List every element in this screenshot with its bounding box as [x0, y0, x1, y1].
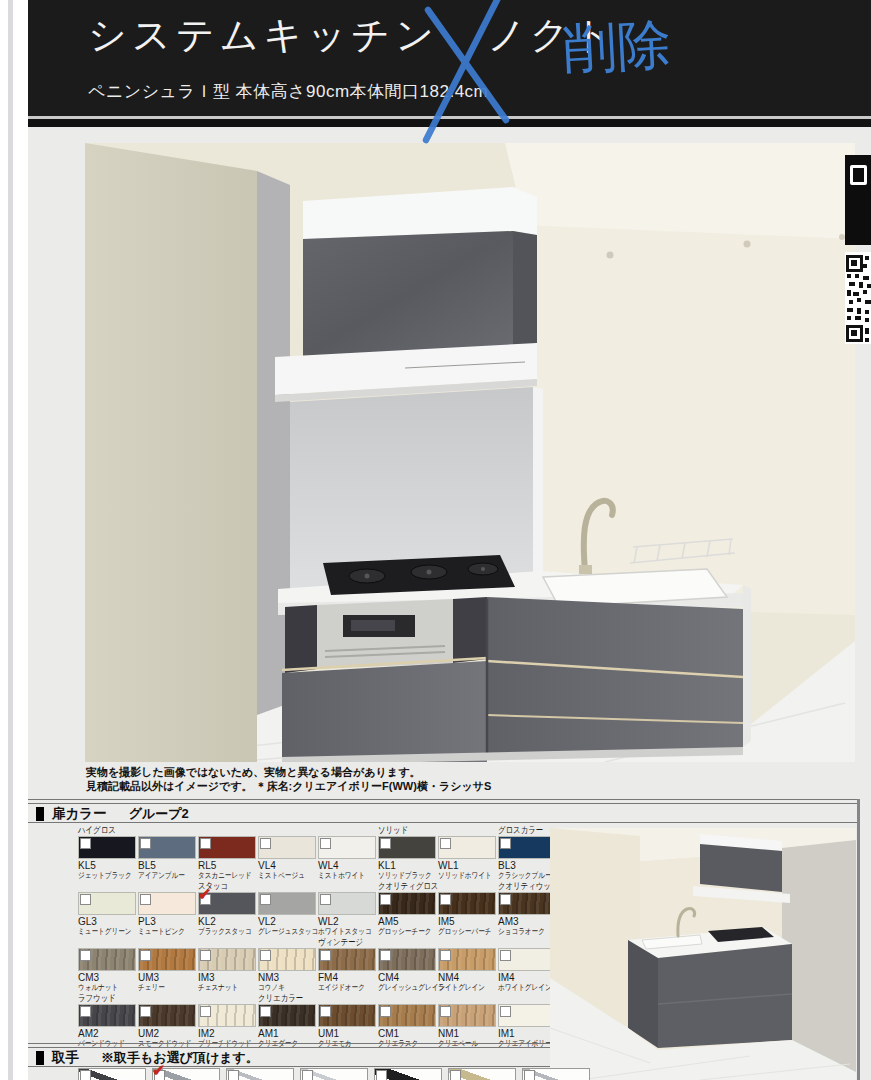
door-color-cell-NM1: NM1クリエペール	[438, 992, 496, 1048]
door-color-cell-NM3: NM3コウノキ	[258, 936, 316, 992]
door-color-cell-IM1: IM1クリエアイボリー	[498, 992, 556, 1048]
door-color-section-header: 扉カラー グループ2	[36, 805, 189, 823]
door-color-cell-IM2: IM2ブリーチドウッド	[198, 992, 256, 1048]
swatch-code: CM3	[78, 972, 136, 983]
section-rule	[28, 822, 860, 823]
swatch-checkbox-UM2[interactable]	[140, 1006, 151, 1017]
page-right-border	[857, 799, 860, 1080]
door-color-swatch-RL5[interactable]	[198, 836, 256, 859]
swatch-checkbox-VL4[interactable]	[260, 838, 271, 849]
door-color-swatch-BL3[interactable]	[498, 836, 556, 859]
door-color-swatch-IM4[interactable]	[498, 948, 556, 971]
section-bullet	[36, 1051, 44, 1065]
door-color-swatch-WL1[interactable]	[438, 836, 496, 859]
door-color-swatch-VL4[interactable]	[258, 836, 316, 859]
door-color-group-label	[258, 880, 306, 892]
header-divider-dark	[28, 119, 871, 127]
door-color-cell-UM1: UM1クリエモカ	[318, 992, 376, 1048]
handle-swatch-6[interactable]	[448, 1068, 516, 1080]
swatch-name: チェスナット	[198, 983, 246, 992]
red-checkmark-icon: ✔	[198, 887, 211, 903]
door-color-swatch-NM1[interactable]	[438, 1004, 496, 1027]
swatch-checkbox-AM5[interactable]	[380, 894, 391, 905]
door-color-group-label	[498, 992, 546, 1004]
door-color-group-label	[498, 936, 546, 948]
door-color-swatch-KL5[interactable]	[78, 836, 136, 859]
swatch-name: エイジドオーク	[318, 983, 366, 992]
swatch-code: NM3	[258, 972, 316, 983]
door-color-cell-KL5: ハイグロスKL5ジェットブラック	[78, 824, 136, 880]
kitchen-render-main	[85, 143, 855, 762]
door-color-cell-VL2: VL2グレージュスタッコ	[258, 880, 316, 936]
swatch-name: グレージュスタッコ	[258, 927, 306, 936]
door-color-cell-AM2: ラフウッドAM2バーンドウッド	[78, 992, 136, 1048]
swatch-name: チェリー	[138, 983, 186, 992]
door-color-swatch-PL3[interactable]	[138, 892, 196, 915]
section-rule	[28, 1047, 550, 1048]
door-color-swatch-GL3[interactable]	[78, 892, 136, 915]
handle-checkbox-7[interactable]	[524, 1070, 535, 1080]
door-color-group-label	[438, 880, 486, 892]
swatch-name: グロッシーバーチ	[438, 927, 486, 936]
swatch-name: ミュートグリーン	[78, 927, 126, 936]
swatch-name: ソリッドホワイト	[438, 871, 486, 880]
door-color-group-label: ソリッド	[378, 824, 426, 836]
page-edge-strip	[8, 0, 13, 1080]
swatch-checkbox-IM2[interactable]	[200, 1006, 211, 1017]
camera-icon	[850, 165, 867, 185]
swatch-name: ミストホワイト	[318, 871, 366, 880]
swatch-checkbox-CM3[interactable]	[80, 950, 91, 961]
swatch-code: AM1	[258, 1028, 316, 1039]
door-color-cell-PL3: PL3ミュートピンク	[138, 880, 196, 936]
door-color-cell-NM4: NM4ライトグレイン	[438, 936, 496, 992]
swatch-code: UM2	[138, 1028, 196, 1039]
swatch-checkbox-AM2[interactable]	[80, 1006, 91, 1017]
swatch-checkbox-WL2[interactable]	[320, 894, 331, 905]
door-color-group-label	[318, 824, 366, 836]
door-color-cell-CM1: CM1クリエラスク	[378, 992, 436, 1048]
swatch-checkbox-KL5[interactable]	[80, 838, 91, 849]
swatch-name: グレイッシュグレイン	[378, 983, 426, 992]
swatch-name: ジェットブラック	[78, 871, 126, 880]
swatch-code: FM4	[318, 972, 376, 983]
handle-swatch-2[interactable]: ✔	[152, 1068, 220, 1080]
door-color-cell-RL5: RL5タスカニーレッド	[198, 824, 256, 880]
swatch-code: NM1	[438, 1028, 496, 1039]
swatch-checkbox-IM4[interactable]	[500, 950, 511, 961]
swatch-checkbox-BL5[interactable]	[140, 838, 151, 849]
door-color-group-label	[198, 992, 246, 1004]
swatch-checkbox-CM1[interactable]	[380, 1006, 391, 1017]
swatch-name: ホワイトグレイン	[498, 983, 546, 992]
door-color-cell-AM3: クオリティウッドAM3ショコラオーク	[498, 880, 556, 936]
swatch-checkbox-UM3[interactable]	[140, 950, 151, 961]
swatch-name: ソリッドブラック	[378, 871, 426, 880]
swatch-code: WL4	[318, 860, 376, 871]
door-color-group-label	[438, 992, 486, 1004]
door-color-swatch-UM1[interactable]	[318, 1004, 376, 1027]
door-color-group-label	[138, 992, 186, 1004]
swatch-code: IM1	[498, 1028, 556, 1039]
swatch-checkbox-IM1[interactable]	[500, 1006, 511, 1017]
door-color-swatch-AM1[interactable]	[258, 1004, 316, 1027]
door-color-swatch-AM2[interactable]	[78, 1004, 136, 1027]
swatch-code: KL5	[78, 860, 136, 871]
door-color-cell-UM3: UM3チェリー	[138, 936, 196, 992]
red-checkmark-icon: ✔	[152, 1063, 165, 1079]
door-color-cell-IM5: IM5グロッシーバーチ	[438, 880, 496, 936]
door-color-cell-IM4: IM4ホワイトグレイン	[498, 936, 556, 992]
handle-checkbox-3[interactable]	[228, 1070, 239, 1080]
door-color-group-label: グロスカラー	[498, 824, 546, 836]
door-color-grid: ハイグロスKL5ジェットブラックBL5アイアンブルーRL5タスカニーレッドVL4…	[78, 824, 560, 1048]
swatch-name: クラシックブルー	[498, 871, 546, 880]
image-disclaimer: 実物を撮影した画像ではないため、実物と異なる場合があります。 見積記載品以外はイ…	[86, 765, 846, 793]
swatch-code: CM4	[378, 972, 436, 983]
door-color-group-label	[78, 880, 126, 892]
handle-swatch-4[interactable]	[300, 1068, 368, 1080]
swatch-checkbox-VL2[interactable]	[260, 894, 271, 905]
door-color-swatch-CM4[interactable]	[378, 948, 436, 971]
door-color-cell-BL5: BL5アイアンブルー	[138, 824, 196, 880]
swatch-code: VL4	[258, 860, 316, 871]
door-color-cell-WL4: WL4ミストホワイト	[318, 824, 376, 880]
door-color-group-label	[198, 936, 246, 948]
door-color-cell-AM1: クリエカラーAM1クリエダーク	[258, 992, 316, 1048]
door-color-group-label: クオリティグロス	[378, 880, 426, 892]
disclaimer-line-1: 実物を撮影した画像ではないため、実物と異なる場合があります。	[86, 765, 846, 779]
door-color-group-label: クオリティウッド	[498, 880, 546, 892]
swatch-checkbox-AM3[interactable]	[500, 894, 511, 905]
door-color-swatch-UM2[interactable]	[138, 1004, 196, 1027]
swatch-code: AM3	[498, 916, 556, 927]
swatch-code: UM1	[318, 1028, 376, 1039]
handle-checkbox-1[interactable]	[80, 1070, 91, 1080]
swatch-code: VL2	[258, 916, 316, 927]
door-color-group-label	[258, 936, 306, 948]
swatch-checkbox-PL3[interactable]	[140, 894, 151, 905]
qr-code[interactable]	[845, 252, 871, 344]
door-color-swatch-BL5[interactable]	[138, 836, 196, 859]
swatch-name: ホワイトスタッコ	[318, 927, 366, 936]
section-rule	[28, 799, 860, 800]
door-color-swatch-WL4[interactable]	[318, 836, 376, 859]
header: システムキッチン ノクト ペニンシュラＩ型 本体高さ90cm本体間口182.4c…	[28, 0, 871, 116]
swatch-checkbox-WL4[interactable]	[320, 838, 331, 849]
page-title: システムキッチン	[88, 10, 439, 61]
handle-note: ※取手もお選び頂けます。	[101, 1049, 259, 1067]
door-color-cell-AM5: クオリティグロスAM5グロッシーチーク	[378, 880, 436, 936]
swatch-checkbox-NM4[interactable]	[440, 950, 451, 961]
swatch-code: WL2	[318, 916, 376, 927]
door-color-swatch-IM1[interactable]	[498, 1004, 556, 1027]
swatch-checkbox-IM3[interactable]	[200, 950, 211, 961]
swatch-code: PL3	[138, 916, 196, 927]
swatch-code: IM3	[198, 972, 256, 983]
handle-checkbox-6[interactable]	[450, 1070, 461, 1080]
section-rule	[28, 803, 860, 804]
door-color-group-label	[318, 880, 366, 892]
door-color-swatch-NM3[interactable]	[258, 948, 316, 971]
door-color-group-label	[438, 936, 486, 948]
door-color-swatch-KL1[interactable]	[378, 836, 436, 859]
handle-swatch-7[interactable]	[522, 1068, 590, 1080]
swatch-name: ライトグレイン	[438, 983, 486, 992]
handle-title: 取手	[52, 1049, 79, 1067]
product-name: ノクト	[487, 10, 616, 61]
door-color-group-label	[318, 992, 366, 1004]
kitchen-render-small	[550, 828, 856, 1080]
door-color-group-label: ハイグロス	[78, 824, 126, 836]
handle-checkbox-5[interactable]	[376, 1070, 387, 1080]
door-color-swatch-FM4[interactable]	[318, 948, 376, 971]
door-color-swatch-UM3[interactable]	[138, 948, 196, 971]
door-color-cell-BL3: グロスカラーBL3クラシックブルー	[498, 824, 556, 880]
door-color-swatch-AM3[interactable]	[498, 892, 556, 915]
swatch-name: ミストベージュ	[258, 871, 306, 880]
door-color-cell-IM3: IM3チェスナット	[198, 936, 256, 992]
handle-swatch-3[interactable]	[226, 1068, 294, 1080]
door-color-cell-FM4: ヴィンテージFM4エイジドオーク	[318, 936, 376, 992]
door-color-swatch-WL2[interactable]	[318, 892, 376, 915]
swatch-checkbox-RL5[interactable]	[200, 838, 211, 849]
door-color-group-label	[438, 824, 486, 836]
door-color-cell-KL1: ソリッドKL1ソリッドブラック	[378, 824, 436, 880]
swatch-checkbox-FM4[interactable]	[320, 950, 331, 961]
handle-grid: ✔	[78, 1068, 590, 1080]
swatch-code: NM4	[438, 972, 496, 983]
door-color-cell-WL2: WL2ホワイトスタッコ	[318, 880, 376, 936]
door-color-group-label	[138, 824, 186, 836]
swatch-checkbox-IM5[interactable]	[440, 894, 451, 905]
door-color-cell-KL2: スタッコ✔KL2ブラックスタッコ	[198, 880, 256, 936]
section-bullet	[36, 807, 44, 821]
swatch-code: BL3	[498, 860, 556, 871]
swatch-code: KL2	[198, 916, 256, 927]
door-color-swatch-IM5[interactable]	[438, 892, 496, 915]
door-color-group: グループ2	[129, 805, 189, 823]
swatch-code: AM2	[78, 1028, 136, 1039]
header-subtitle: ペニンシュラＩ型 本体高さ90cm本体間口182.4cm	[88, 80, 488, 103]
door-color-cell-CM3: CM3ウォルナット	[78, 936, 136, 992]
swatch-checkbox-BL3[interactable]	[500, 838, 511, 849]
door-color-swatch-KL2[interactable]: ✔	[198, 892, 256, 915]
door-color-group-label	[378, 992, 426, 1004]
door-color-title: 扉カラー	[52, 805, 107, 823]
handle-swatch-5[interactable]	[374, 1068, 442, 1080]
swatch-checkbox-AM1[interactable]	[260, 1006, 271, 1017]
door-color-group-label	[258, 824, 306, 836]
door-color-group-label: クリエカラー	[258, 992, 306, 1004]
section-rule	[28, 1043, 550, 1044]
swatch-code: IM4	[498, 972, 556, 983]
swatch-name: ブラックスタッコ	[198, 927, 246, 936]
door-color-swatch-NM4[interactable]	[438, 948, 496, 971]
handle-checkbox-4[interactable]	[302, 1070, 313, 1080]
swatch-code: CM1	[378, 1028, 436, 1039]
swatch-name: ショコラオーク	[498, 927, 546, 936]
swatch-code: IM2	[198, 1028, 256, 1039]
swatch-checkbox-UM1[interactable]	[320, 1006, 331, 1017]
door-color-swatch-CM1[interactable]	[378, 1004, 436, 1027]
door-color-cell-WL1: WL1ソリッドホワイト	[438, 824, 496, 880]
swatch-code: IM5	[438, 916, 496, 927]
swatch-checkbox-KL1[interactable]	[380, 838, 391, 849]
door-color-cell-CM4: CM4グレイッシュグレイン	[378, 936, 436, 992]
door-color-group-label: ヴィンテージ	[318, 936, 366, 948]
swatch-name: コウノキ	[258, 983, 306, 992]
door-color-swatch-VL2[interactable]	[258, 892, 316, 915]
swatch-checkbox-GL3[interactable]	[80, 894, 91, 905]
handle-swatch-1[interactable]	[78, 1068, 146, 1080]
door-color-group-label	[378, 936, 426, 948]
door-color-group-label	[138, 880, 186, 892]
door-color-group-label	[78, 936, 126, 948]
catalog-icon	[845, 155, 871, 245]
swatch-name: アイアンブルー	[138, 871, 186, 880]
swatch-code: GL3	[78, 916, 136, 927]
swatch-code: BL5	[138, 860, 196, 871]
door-color-swatch-IM2[interactable]	[198, 1004, 256, 1027]
swatch-name: ミュートピンク	[138, 927, 186, 936]
door-color-group-label	[138, 936, 186, 948]
swatch-code: AM5	[378, 916, 436, 927]
door-color-swatch-CM3[interactable]	[78, 948, 136, 971]
door-color-group-label	[198, 824, 246, 836]
door-color-swatch-AM5[interactable]	[378, 892, 436, 915]
swatch-checkbox-NM1[interactable]	[440, 1006, 451, 1017]
swatch-checkbox-CM4[interactable]	[380, 950, 391, 961]
swatch-checkbox-NM3[interactable]	[260, 950, 271, 961]
swatch-name: グロッシーチーク	[378, 927, 426, 936]
swatch-code: RL5	[198, 860, 256, 871]
swatch-code: UM3	[138, 972, 196, 983]
door-color-group-label: ラフウッド	[78, 992, 126, 1004]
swatch-code: KL1	[378, 860, 436, 871]
disclaimer-line-2: 見積記載品以外はイメージです。 ＊床名:クリエアイボリーF(WW)横・ラシッサS	[86, 779, 846, 793]
door-color-swatch-IM3[interactable]	[198, 948, 256, 971]
swatch-code: WL1	[438, 860, 496, 871]
swatch-name: ウォルナット	[78, 983, 126, 992]
handle-section-header: 取手 ※取手もお選び頂けます。	[36, 1049, 259, 1067]
door-color-cell-GL3: GL3ミュートグリーン	[78, 880, 136, 936]
swatch-checkbox-WL1[interactable]	[440, 838, 451, 849]
section-rule	[28, 1066, 550, 1067]
door-color-cell-UM2: UM2スモークドウッド	[138, 992, 196, 1048]
door-color-cell-VL4: VL4ミストベージュ	[258, 824, 316, 880]
swatch-name: タスカニーレッド	[198, 871, 246, 880]
